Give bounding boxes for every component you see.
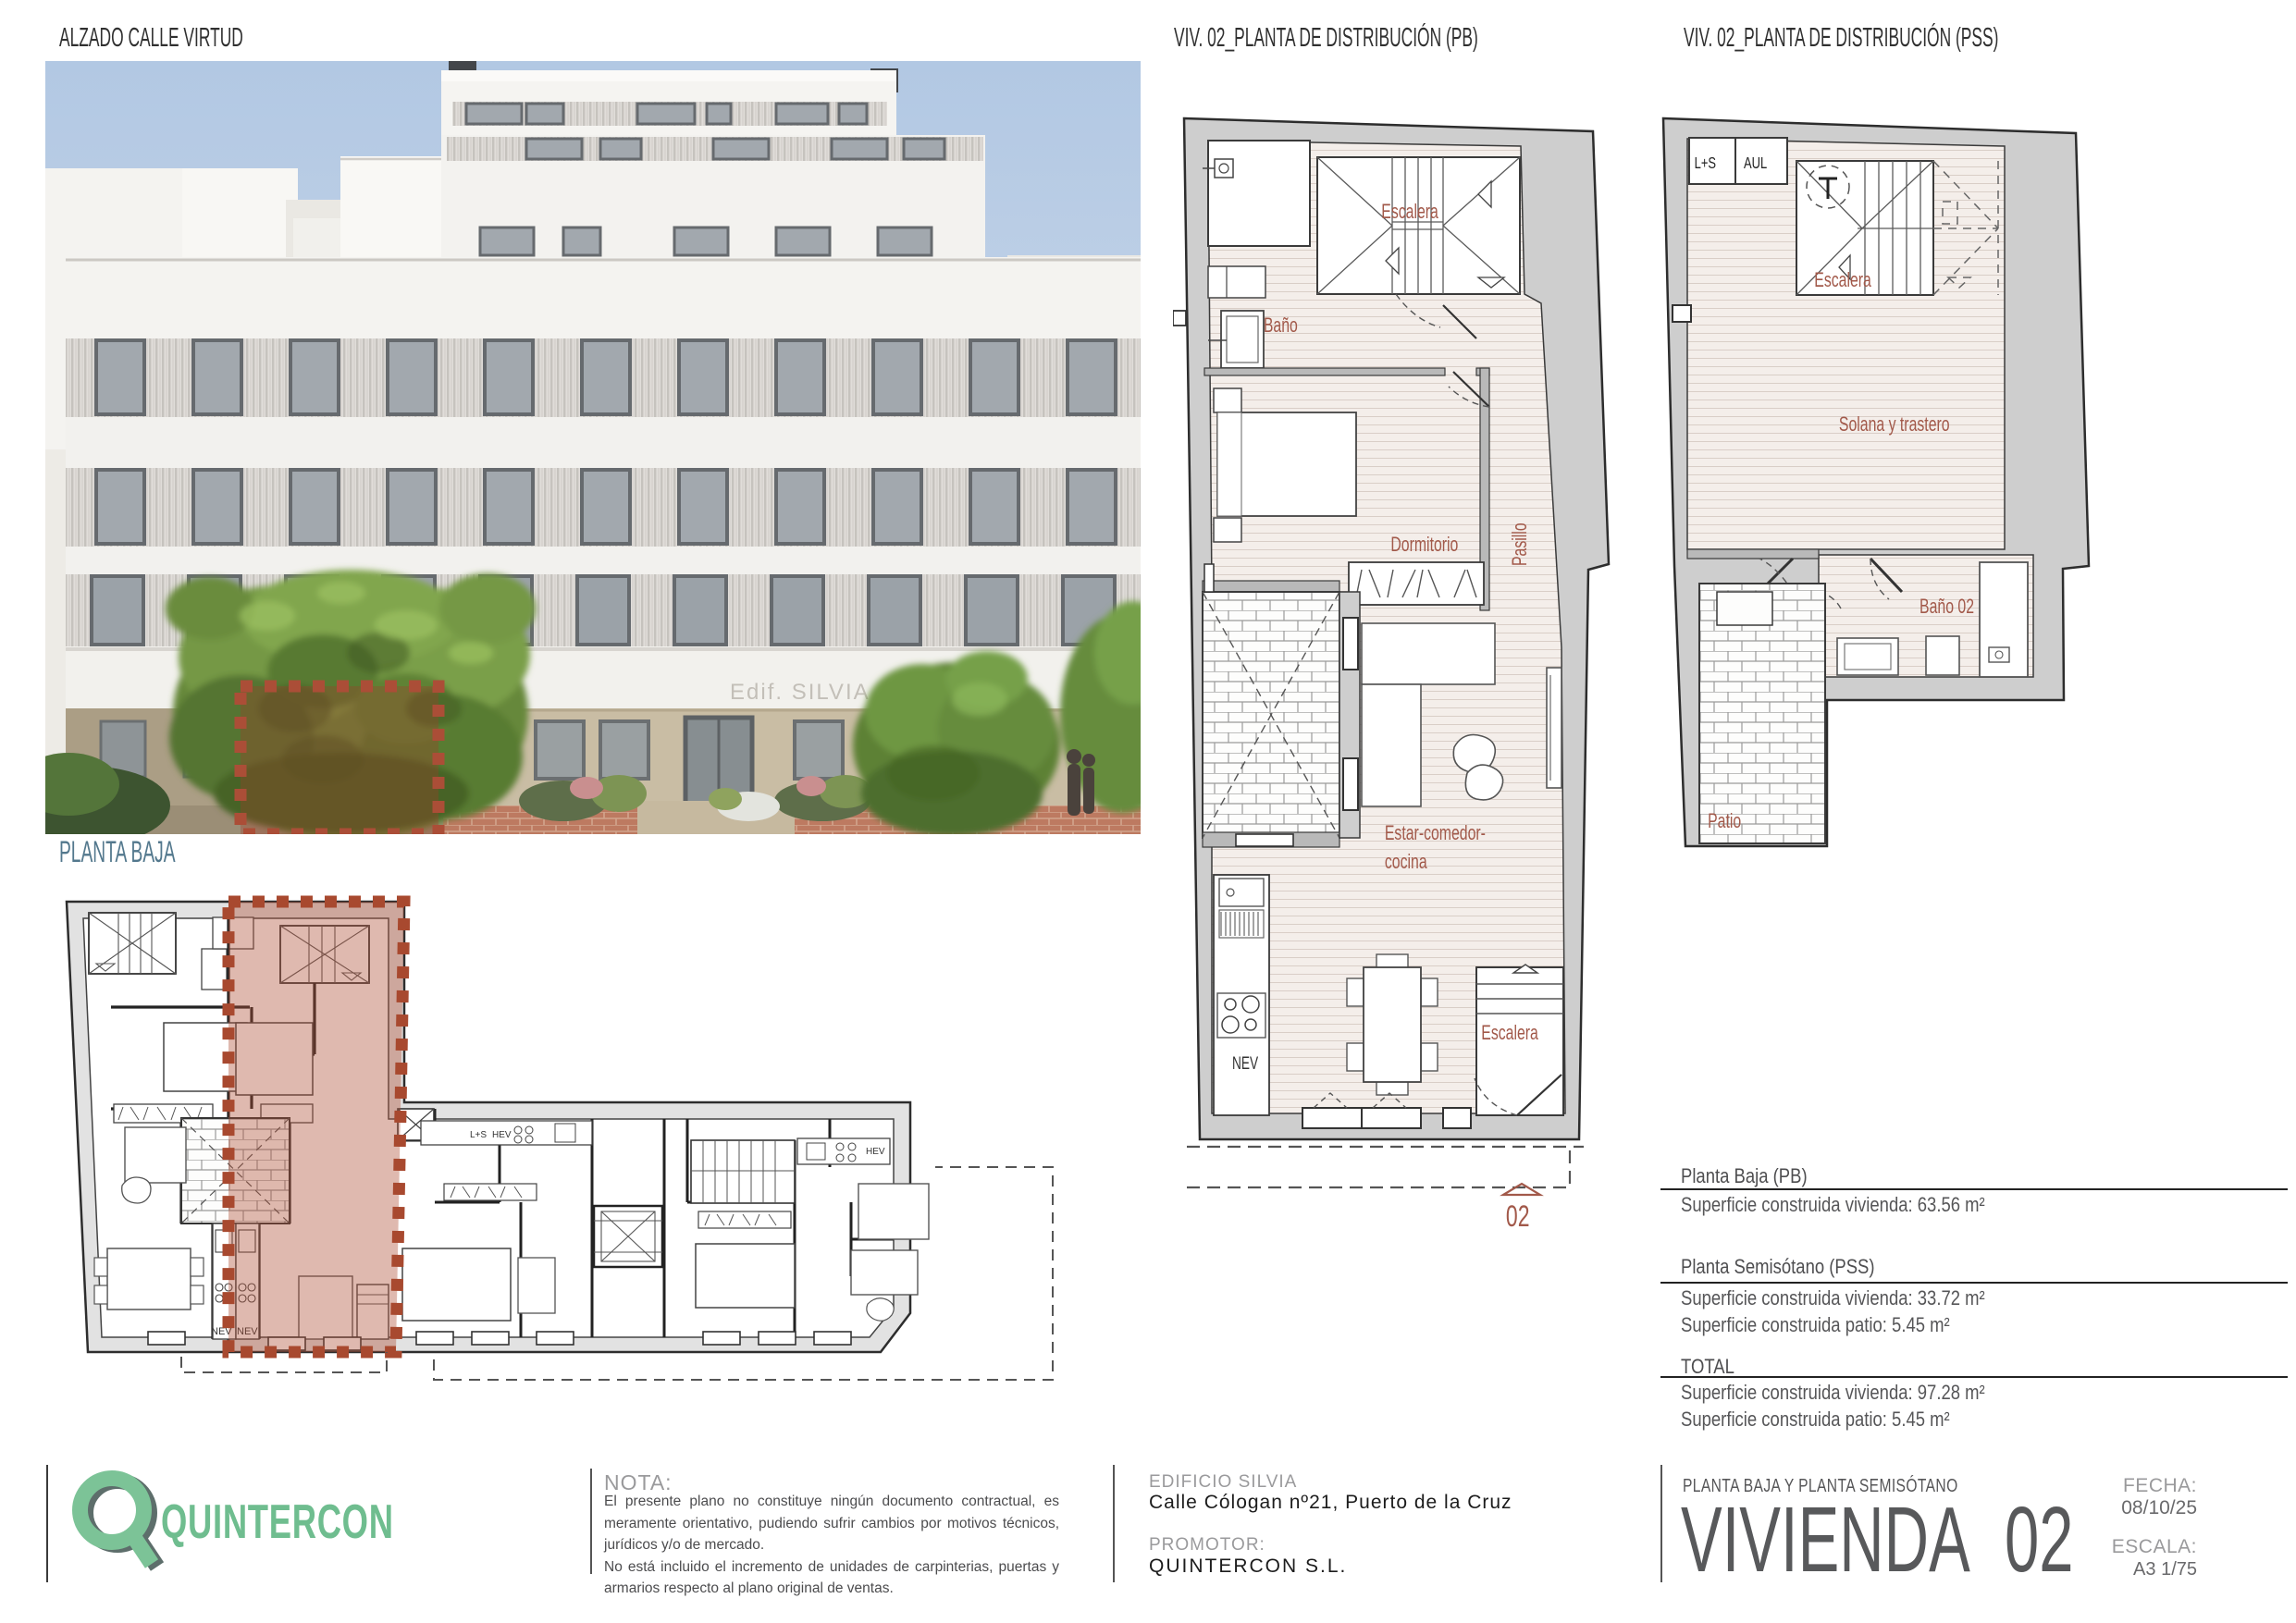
- svg-text:02: 02: [1506, 1199, 1530, 1230]
- svg-text:cocina: cocina: [1385, 852, 1427, 874]
- svg-text:L+S: L+S: [470, 1130, 487, 1140]
- svg-text:Patio: Patio: [1708, 811, 1741, 833]
- svg-text:Edif. SILVIA: Edif. SILVIA: [730, 680, 870, 705]
- svg-text:NEV: NEV: [1232, 1053, 1258, 1074]
- svg-text:Escalera: Escalera: [1381, 202, 1438, 224]
- svg-text:Pasillo: Pasillo: [1510, 523, 1532, 566]
- svg-text:HEV: HEV: [866, 1147, 885, 1157]
- svg-text:Estar-comedor-: Estar-comedor-: [1385, 823, 1486, 845]
- svg-text:Dormitorio: Dormitorio: [1390, 535, 1458, 557]
- svg-text:L+S: L+S: [1695, 154, 1716, 173]
- svg-text:Solana y trastero: Solana y trastero: [1839, 414, 1950, 436]
- svg-text:HEV: HEV: [492, 1130, 512, 1140]
- svg-text:Escalera: Escalera: [1481, 1023, 1538, 1045]
- svg-text:Baño: Baño: [1264, 315, 1298, 338]
- svg-text:Baño 02: Baño 02: [1920, 596, 1974, 619]
- svg-text:AUL: AUL: [1744, 154, 1767, 173]
- svg-text:Escalera: Escalera: [1814, 270, 1871, 292]
